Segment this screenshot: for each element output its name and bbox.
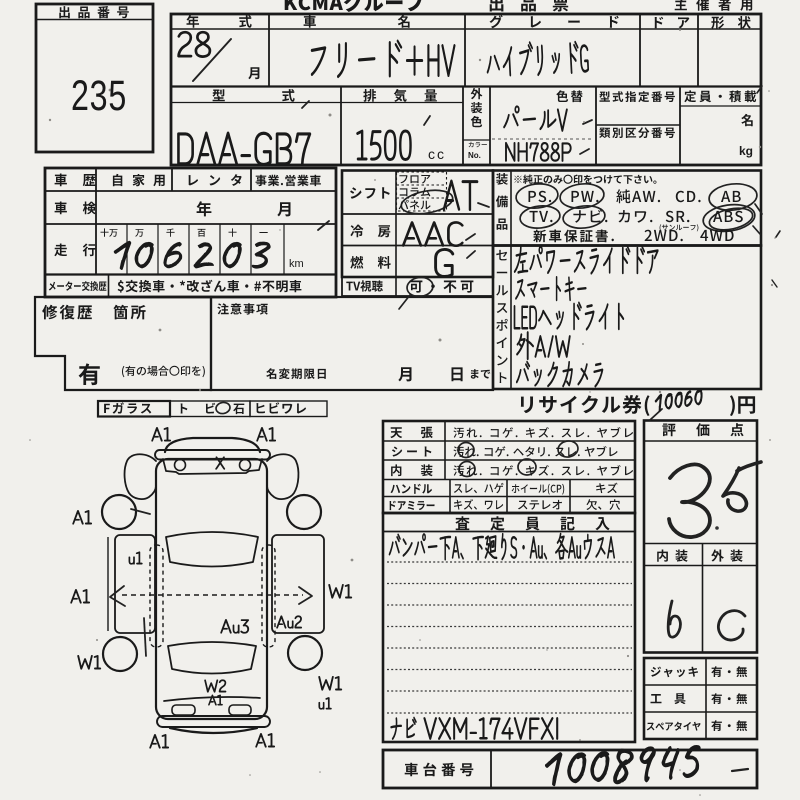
svg-text:kg: kg [739, 144, 753, 158]
svg-text:km: km [289, 258, 304, 270]
svg-text:cc: cc [428, 146, 446, 162]
svg-text:235: 235 [71, 73, 127, 121]
svg-text:No.: No. [468, 151, 481, 160]
